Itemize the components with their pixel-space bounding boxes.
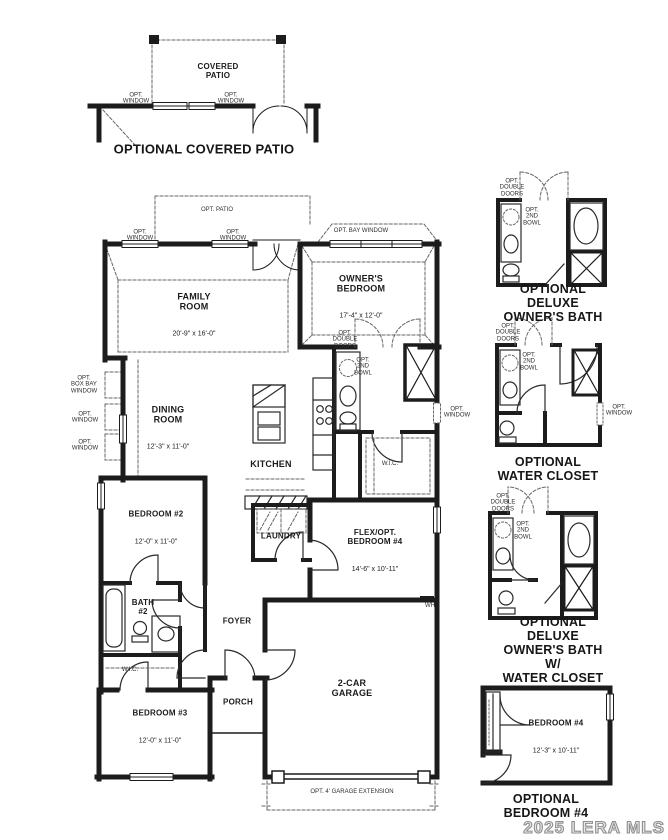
opt-window-left-2-label: OPT. WINDOW (72, 440, 98, 453)
foyer-label: FOYER (223, 618, 252, 627)
owners-bedroom-label: OWNER'S BEDROOM 17'-4" x 12'-0" (337, 256, 385, 339)
water-closet-opt-2nd-bowl-label: OPT. 2ND BOWL (520, 353, 538, 372)
family-room-label: FAMILY ROOM 20'-9" x 16'-0" (172, 274, 215, 357)
bedroom2-dims: 12'-0" x 11'-0" (129, 538, 184, 546)
flex-bedroom4-label: FLEX/OPT. BEDROOM #4 14'-6" x 10'-11" (348, 511, 403, 591)
opt-window-right-label: OPT. WINDOW (444, 407, 470, 420)
deluxe-bath-wc-opt-double-doors-label: OPT. DOUBLE DOORS (491, 494, 516, 513)
opt-window-top-right-label: OPT. WINDOW (220, 230, 246, 243)
opt-box-bay-window-label: OPT. BOX BAY WINDOW (71, 376, 97, 395)
optional-bedroom4-title: OPTIONAL BEDROOM #4 (504, 792, 589, 820)
dining-room-dims: 12'-3" x 11'-0" (147, 444, 190, 452)
optional-deluxe-owners-bath-wc-title: OPTIONAL DELUXE OWNER'S BATH W/ WATER CL… (496, 615, 611, 685)
opt-bay-window-label: OPT. BAY WINDOW (334, 228, 388, 234)
bedroom3-label: BEDROOM #3 12'-0" x 11'-0" (133, 691, 188, 763)
opt-patio-label: OPT. PATIO (201, 207, 233, 213)
bedroom2-label: BEDROOM #2 12'-0" x 11'-0" (129, 492, 184, 564)
patio-opt-window-left-label: OPT. WINDOW (123, 93, 149, 106)
family-room-dims: 20'-9" x 16'-0" (172, 331, 215, 339)
optional-water-closet-title: OPTIONAL WATER CLOSET (498, 455, 599, 483)
wic-bed3-label: W.I.C. (122, 667, 138, 673)
deluxe-bath-opt-double-doors-label: OPT. DOUBLE DOORS (500, 179, 525, 198)
bedroom2-name: BEDROOM #2 (129, 510, 184, 519)
water-heater-label: WH (425, 603, 435, 609)
laundry-label: LAUNDRY (261, 533, 301, 542)
garage-label: 2-CAR GARAGE (332, 678, 373, 698)
bath2-label: BATH #2 (132, 599, 154, 617)
floor-plan-page: COVERED PATIO OPT. WINDOW OPT. WINDOW OP… (0, 0, 668, 840)
patio-opt-window-right-label: OPT. WINDOW (218, 93, 244, 106)
water-closet-opt-double-doors-label: OPT. DOUBLE DOORS (496, 324, 521, 343)
dining-room-name: DINING ROOM (147, 405, 190, 425)
kitchen-label: KITCHEN (250, 459, 291, 469)
opt-bedroom4-dims: 12'-3" x 10'-11" (529, 747, 584, 755)
opt-window-left-1-label: OPT. WINDOW (72, 412, 98, 425)
opt-window-top-left-label: OPT. WINDOW (127, 230, 153, 243)
optional-deluxe-owners-bath-title: OPTIONAL DELUXE OWNER'S BATH (496, 282, 611, 324)
dining-room-label: DINING ROOM 12'-3" x 11'-0" (147, 387, 190, 470)
covered-patio-room-label: COVERED PATIO (198, 63, 239, 81)
opt-garage-extension-label: OPT. 4' GARAGE EXTENSION (310, 789, 393, 795)
deluxe-bath-wc-opt-2nd-bowl-label: OPT. 2ND BOWL (514, 522, 532, 541)
optional-covered-patio-title: OPTIONAL COVERED PATIO (114, 143, 295, 158)
water-closet-opt-window-label: OPT. WINDOW (606, 405, 632, 418)
deluxe-bath-opt-2nd-bowl-label: OPT. 2ND BOWL (523, 208, 541, 227)
bedroom3-dims: 12'-0" x 11'-0" (133, 737, 188, 745)
flex-bedroom4-dims: 14'-6" x 10'-11" (348, 565, 403, 573)
family-room-name: FAMILY ROOM (172, 292, 215, 312)
opt-bedroom4-room-label: BEDROOM #4 12'-3" x 10'-11" (529, 701, 584, 773)
owners-bedroom-dims: 17'-4" x 12'-0" (337, 313, 385, 321)
opt-bedroom4-name: BEDROOM #4 (529, 719, 584, 728)
porch-label: PORCH (223, 699, 253, 708)
flex-bedroom4-name: FLEX/OPT. BEDROOM #4 (348, 529, 403, 547)
owners-bedroom-name: OWNER'S BEDROOM (337, 274, 385, 294)
wic-owners-label: W.I.C. (382, 461, 398, 467)
mls-watermark: 2025 LERA MLS (523, 818, 665, 838)
opt-2nd-bowl-label: OPT. 2ND BOWL (354, 358, 372, 377)
bedroom3-name: BEDROOM #3 (133, 709, 188, 718)
